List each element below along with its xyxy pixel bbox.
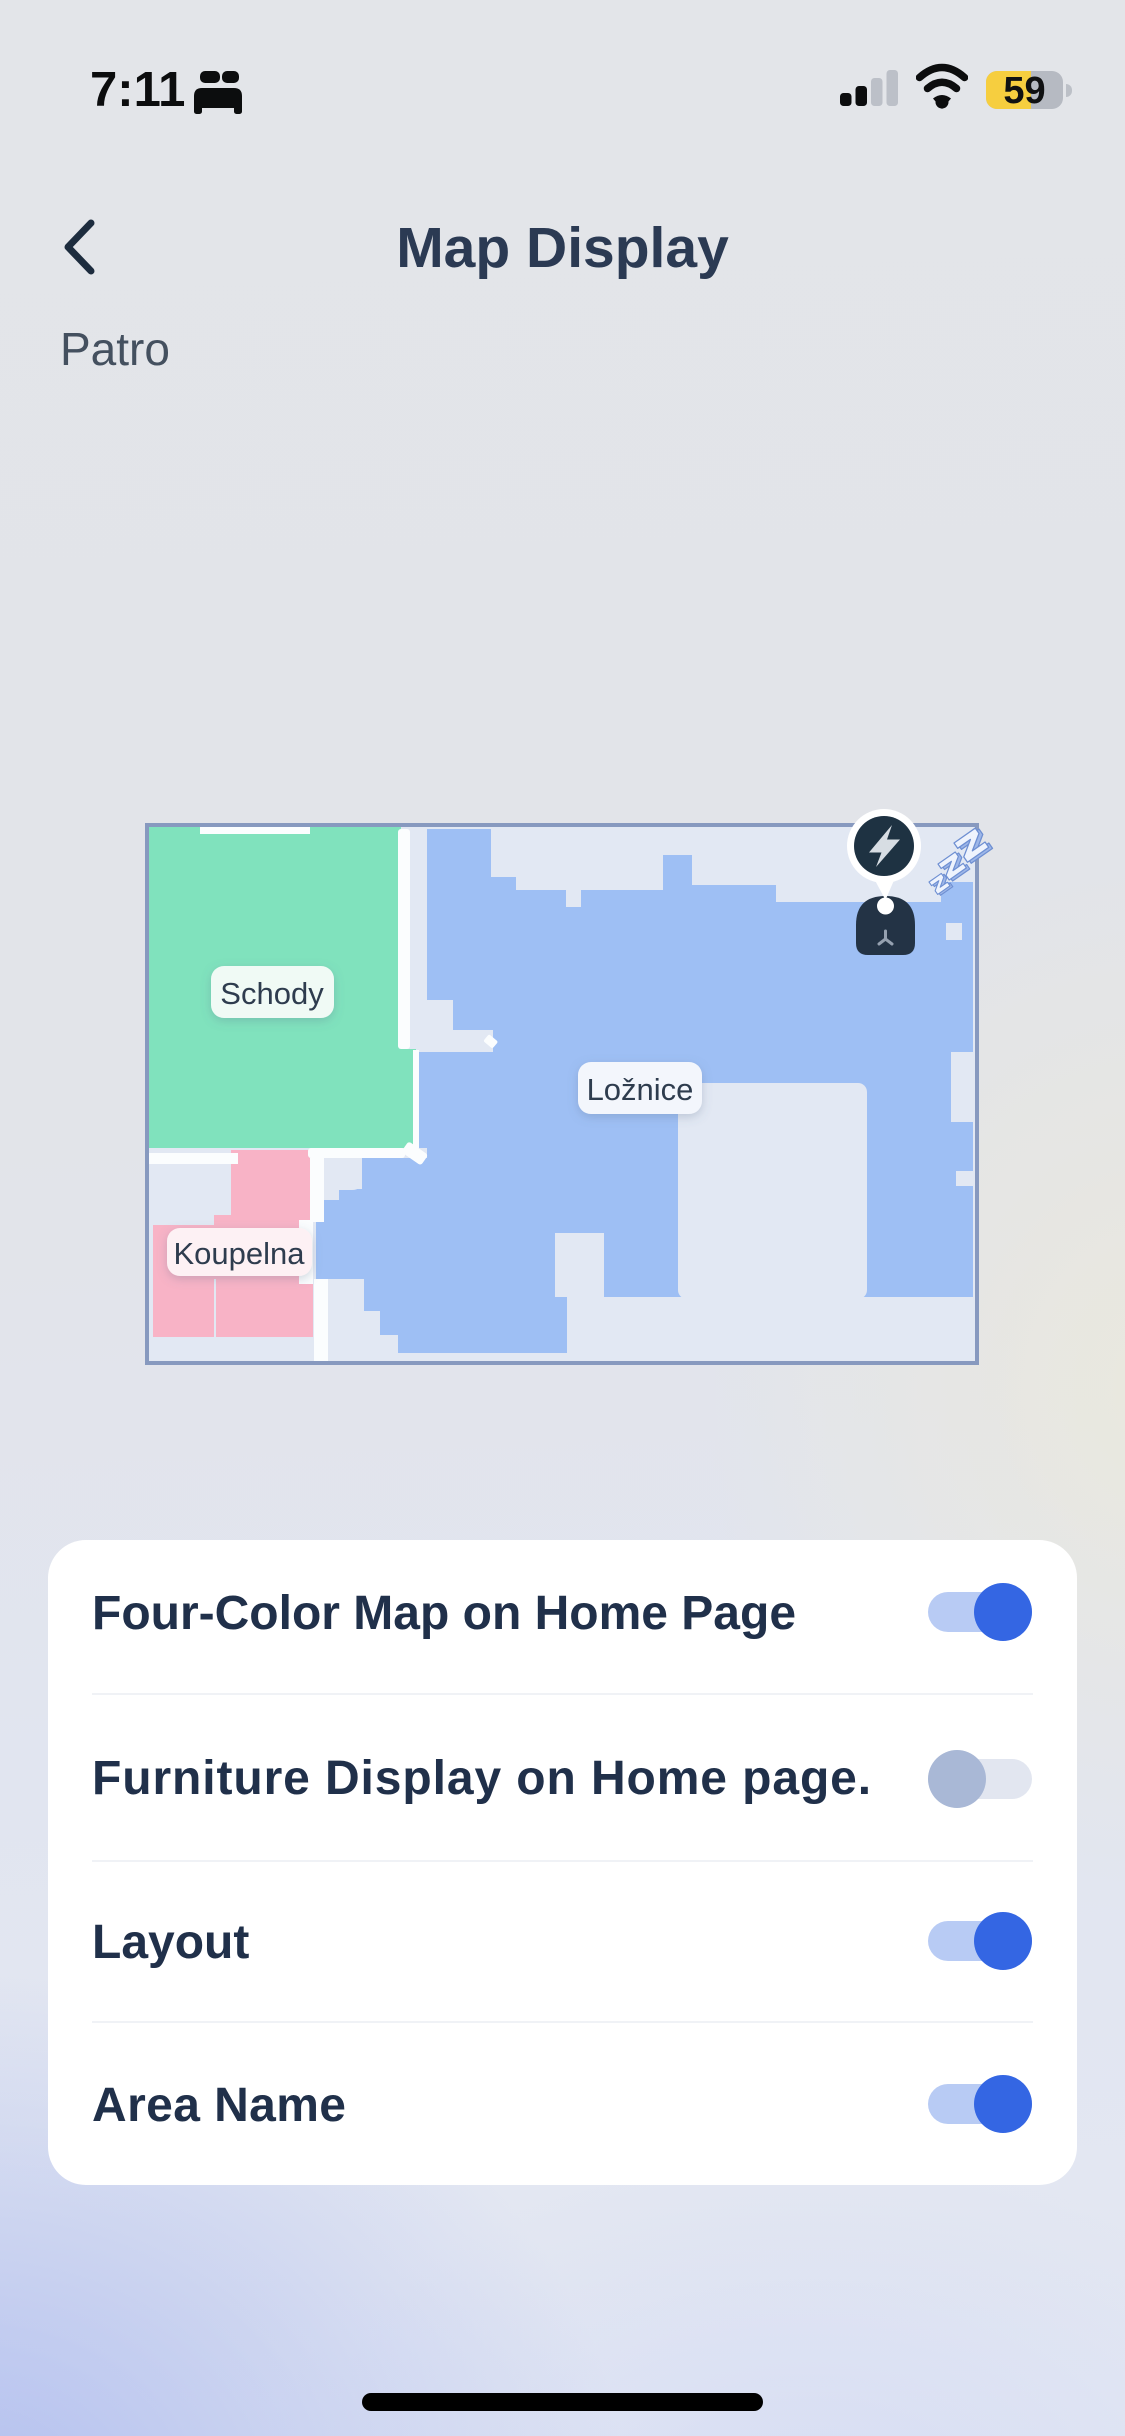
svg-text:Ložnice: Ložnice [587,1072,694,1107]
svg-text:Schody: Schody [220,976,324,1011]
svg-text:Koupelna: Koupelna [173,1236,305,1271]
